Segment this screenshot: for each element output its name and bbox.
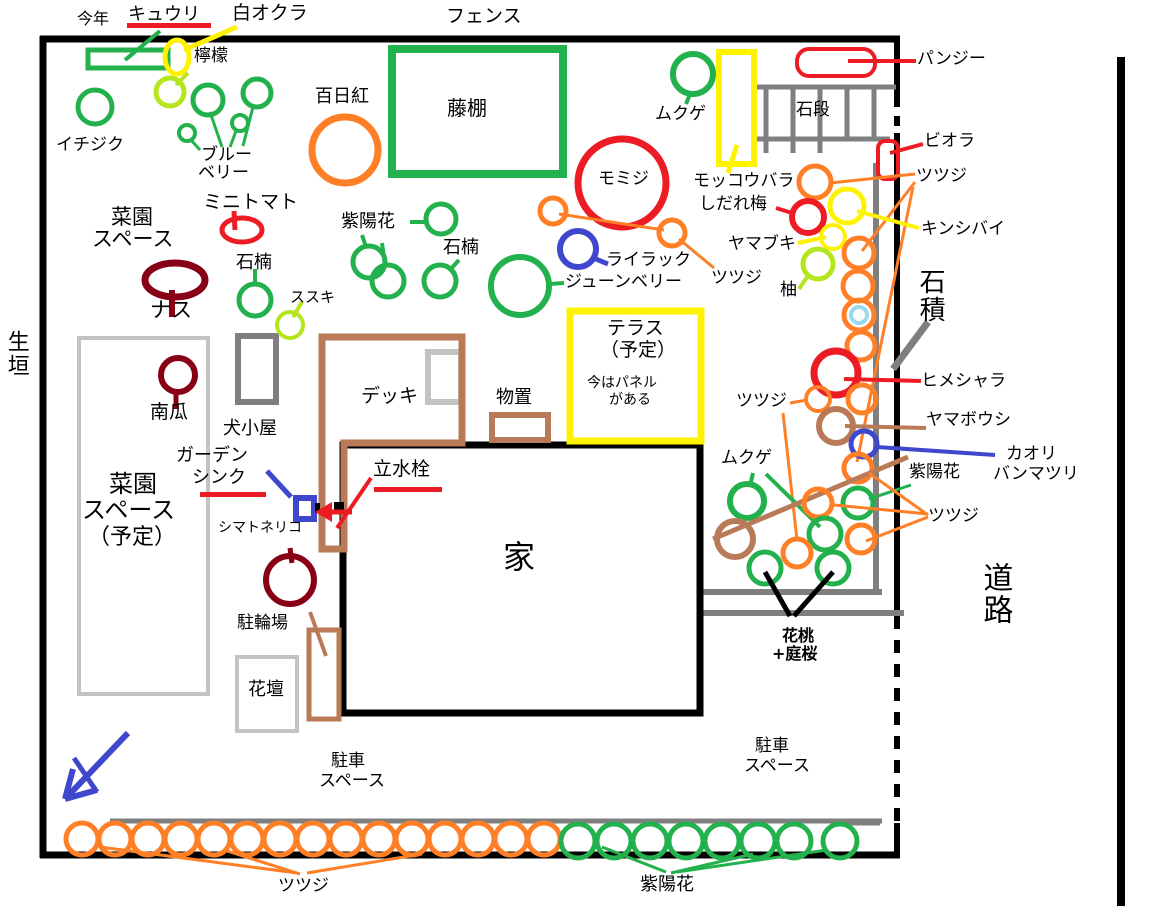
label-veg-garden-plan-2: スペース [82,498,175,524]
label-garden-sink-1: ガーデン [176,446,248,465]
label-rhododendron-left: 石楠 [236,253,272,272]
juneberry-stem [549,283,564,284]
label-lilac: ライラック [606,251,691,269]
label-azalea-mid-1: ツツジ [711,269,762,287]
label-rose-of-sharon-low: ムクゲ [721,449,772,467]
label-banksia-rose: モッコウバラ [693,172,794,190]
label-parking-left-2: スペース [319,772,385,790]
label-viola: ビオラ [924,132,975,150]
label-pansy: パンジー [917,50,986,68]
label-veg-garden-plan-1: 菜園 [109,472,157,498]
label-veg-garden-1: 菜園 [111,206,153,229]
label-hanamomo-1: 花桃 [782,627,814,644]
hydrangea-stem [382,243,385,265]
azalea-circle [363,823,395,855]
mini-tomato-circle [222,218,262,242]
kinshibai-pointer-line [857,211,919,228]
label-weeping-plum: しだれ梅 [699,195,767,213]
azalea-circle [848,385,876,413]
label-white-okra: 白オクラ [232,3,308,24]
label-kousa-dogwood: ヤマボウシ [926,411,1011,429]
label-this-year: 今年 [77,10,109,27]
label-hydrangea-mid: 紫陽花 [341,212,395,231]
pumpkin-circle [161,358,195,392]
blueberry-circle [193,85,223,115]
azalea-circle [843,271,873,301]
label-azalea-right-low: ツツジ [928,507,979,525]
label-fig: イチジク [56,136,124,154]
azalea-pointer-line [830,174,915,183]
garden-plan-diagram: 今年 キュウリ 白オクラ フェンス 檸檬 イチジク ブルー ベリー 百日紅 藤棚… [0,0,1151,911]
hydrangea-circle [426,204,456,234]
azalea-pointer-line [790,400,807,403]
label-veg-garden-2: スペース [92,228,173,251]
label-lemon: 檸檬 [194,47,228,65]
label-terrace-2: （予定） [600,340,676,361]
label-azalea-mid-2: ツツジ [736,392,787,410]
blueberry-circle [179,125,195,141]
flowering-peach-circle [749,552,781,584]
label-standpipe: 立水栓 [373,459,430,480]
label-storage-shed: 物置 [496,388,532,407]
rhododendron-left-circle [239,284,271,316]
kinshibai-circle [830,189,864,223]
label-maple: モミジ [598,170,649,188]
label-terrace-4: がある [609,393,651,408]
azalea-circle [231,823,263,855]
garden-sink-pointer-line [267,471,291,497]
blueberry-stem [210,112,222,147]
label-deck: デッキ [361,386,418,407]
label-kinshibai: キンシバイ [921,220,1005,238]
storage-shed-rect [492,415,548,440]
label-house: 家 [503,540,535,575]
azalea-circle [462,823,494,855]
fig-circle [78,90,112,124]
garden-cherry-circle [817,552,849,584]
label-azalea-right-top: ツツジ [916,167,967,185]
yuzu-stem [799,274,809,289]
label-parking-left-1: 駐車 [331,752,365,770]
rose-of-sharon-top-circle [673,54,713,94]
label-yuzu: 柚 [780,281,797,299]
label-terrace-3: 今はパネル [587,376,657,391]
house-rect [343,445,700,713]
label-wisteria-trellis: 藤棚 [447,98,487,120]
azalea-circle [264,823,296,855]
label-fence: フェンス [446,6,522,27]
label-kaori-1: カオリ [1006,445,1057,463]
label-himeshara: ヒメシャラ [921,372,1006,390]
label-yamabuki: ヤマブキ [728,235,796,253]
bicycle-parking-rect [309,630,339,719]
azalea-circle [297,823,329,855]
azalea-pointer-line [783,413,797,540]
label-shimatoneriko: シマトネリコ [218,521,302,536]
azalea-circle [396,823,428,855]
label-doghouse: 犬小屋 [223,419,277,438]
label-blueberry-2: ベリー [198,164,249,182]
shimatoneriko-stem [290,548,292,563]
azalea-circle [495,823,527,855]
himeshara-pointer-line [844,379,921,381]
label-rhododendron-mid: 石楠 [443,238,479,257]
hydrangea-circle [372,265,404,297]
label-juneberry: ジューンベリー [565,273,682,291]
azalea-circle [165,823,197,855]
rose-of-sharon-low-circle [730,484,764,518]
label-bicycle-parking: 駐輪場 [237,614,288,632]
azalea-circle [66,823,98,855]
rose-of-sharon-pointer-line [766,474,820,527]
label-cucumber: キュウリ [128,5,200,24]
bicycle-parking-line [310,612,326,656]
azalea-circle [540,198,566,224]
doghouse-rect [238,336,276,402]
inner-blue-circle [851,307,867,323]
label-blueberry-1: ブルー [201,146,252,164]
label-hydrangea-right: 紫陽花 [909,463,960,481]
azalea-circle [528,823,560,855]
azalea-circle [844,238,874,268]
label-azalea-bottom: ツツジ [278,877,329,895]
label-hanamomo-2: +庭桜 [772,645,817,662]
azalea-circle [844,300,874,330]
label-hedge: 生垣 [4,330,28,378]
hydrangea-circle [353,246,385,278]
azalea-pointer-line [857,187,913,462]
label-veg-garden-plan-3: （予定） [88,526,176,550]
label-pumpkin: 南瓜 [150,402,188,423]
label-kaori-2: バンマツリ [993,465,1079,483]
label-hydrangea-bottom: 紫陽花 [640,875,694,894]
label-mini-tomato: ミニトマト [203,192,298,213]
azalea-circle [783,539,811,567]
azalea-circle [132,823,164,855]
garden-sink-rect [296,498,314,519]
banksia-rose-pointer-line [728,145,737,173]
label-stone-steps: 石段 [796,101,830,119]
blueberry-stem [191,140,200,150]
hydrangea-circle [809,518,841,550]
cucumber-pointer-line [125,31,160,60]
label-eggplant: ナス [150,299,192,322]
azalea-circle [330,823,362,855]
crape-myrtle-circle [312,117,378,183]
weeping-plum-pointer-line [776,208,792,213]
azalea-circle [198,823,230,855]
garden-plan-drawing [0,0,1151,911]
deck-step-rect [428,352,461,402]
azalea-circle [799,166,831,198]
label-terrace-1: テラス [607,318,664,339]
red-underline-garden-sink [200,492,266,497]
weeping-plum-circle [792,201,824,233]
label-flowerbed: 花壇 [248,680,284,699]
label-crape-myrtle: 百日紅 [315,87,369,106]
red-underline-standpipe [374,487,442,492]
blueberry-circle [243,79,271,107]
label-parking-right-2: スペース [744,757,810,775]
azalea-circle [429,823,461,855]
label-susuki: ススキ [290,289,335,305]
label-parking-right-1: 駐車 [755,737,789,755]
hydrangea-circle [843,488,873,518]
lilac-circle [560,231,596,267]
mini-tomato-stem [234,211,235,230]
label-road: 道路 [978,562,1010,626]
susuki-circle [277,312,303,338]
label-stone-wall: 石積 [916,268,944,324]
blueberry-stem [243,107,253,146]
label-garden-sink-2: シンク [192,468,246,487]
blueberry-circle [232,115,248,131]
kousa-dogwood-pointer-line [845,426,926,428]
label-rose-of-sharon-top: ムクゲ [655,105,706,123]
juneberry-circle [491,257,549,315]
